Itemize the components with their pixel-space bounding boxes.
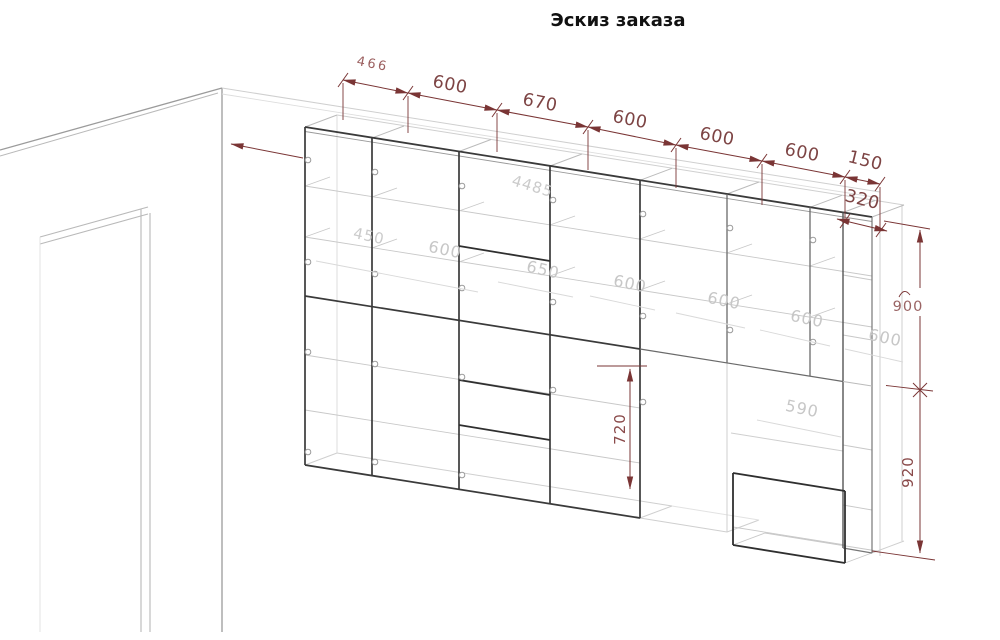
dim-900: 900 (893, 299, 924, 315)
hinge-circles (305, 157, 816, 478)
dim-150: 150 (846, 147, 885, 175)
dim-920: 920 (899, 456, 917, 488)
dim-720: 720 (611, 413, 629, 445)
faint-dim-600-c: 600 (706, 288, 743, 314)
dim-600-4: 600 (783, 140, 821, 166)
cabinet-shelves (305, 177, 877, 563)
wall-lines (0, 88, 880, 632)
faint-dim-450: 450 (352, 224, 387, 248)
faint-dim-600-b: 600 (612, 271, 649, 297)
dim-466: 466 (355, 54, 390, 75)
lower-right-cabinet-box (733, 473, 845, 563)
dim-600-3: 600 (698, 124, 736, 150)
faint-dim-600-d: 600 (789, 306, 826, 332)
door-frame (40, 207, 150, 632)
dim-600-2: 600 (611, 107, 649, 133)
dim-670: 670 (521, 90, 559, 116)
faint-dim-650: 650 (525, 257, 562, 283)
faint-dim-590: 590 (784, 396, 821, 422)
dim-600-1: 600 (431, 72, 469, 98)
order-sketch-canvas: Эскиз заказа (0, 0, 1000, 640)
page-title: Эскиз заказа (550, 10, 685, 31)
order-sketch-page: Эскиз заказа (0, 0, 1000, 640)
faint-dim-4485: 4485 (510, 171, 556, 201)
faint-dim-600-a: 600 (427, 237, 464, 263)
